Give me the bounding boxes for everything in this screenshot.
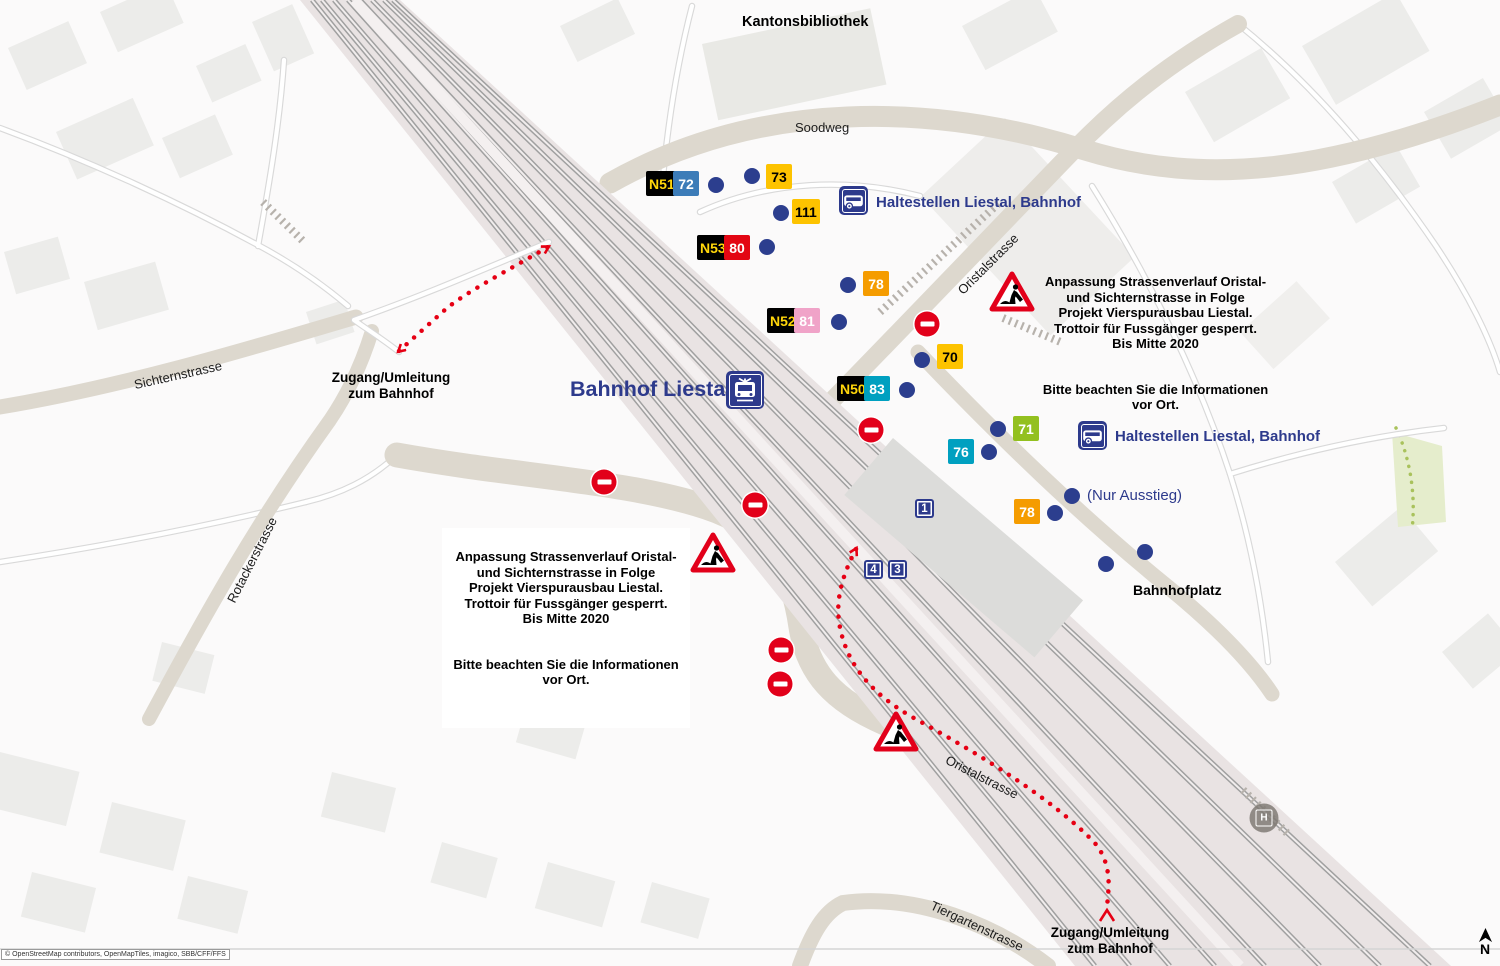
- haltestellen-label-north: Haltestellen Liestal, Bahnhof: [876, 194, 1081, 211]
- map-attribution: © OpenStreetMap contributors, OpenMapTil…: [1, 949, 230, 960]
- detour-label-north: Zugang/Umleitung zum Bahnhof: [320, 370, 462, 401]
- north-letter: N: [1480, 943, 1490, 956]
- map-canvas: Kantonsbibliothek Soodweg Sichternstrass…: [0, 0, 1500, 966]
- label-soodweg: Soodweg: [795, 120, 849, 135]
- north-arrow: N: [1476, 928, 1494, 956]
- exit-only-label: (Nur Ausstieg): [1087, 487, 1182, 504]
- road-sichternstrasse: [0, 317, 356, 407]
- detour-label-south: Zugang/Umleitung zum Bahnhof: [1035, 925, 1185, 956]
- construction-notice-west: Anpassung Strassenverlauf Oristal- und S…: [442, 528, 690, 728]
- notice-body: Anpassung Strassenverlauf Oristal- und S…: [1028, 274, 1283, 351]
- station-name-label: Bahnhof Liestal: [570, 377, 731, 402]
- bus-stop-icon: [839, 186, 868, 215]
- train-icon: [726, 371, 764, 409]
- notice-footer: Bitte beachten Sie die Informationen vor…: [442, 657, 690, 688]
- construction-notice-east: Anpassung Strassenverlauf Oristal- und S…: [1028, 259, 1283, 443]
- h-stop-letter: H: [1256, 810, 1273, 827]
- green-area: [1392, 428, 1446, 530]
- label-kantonsbibliothek: Kantonsbibliothek: [742, 14, 868, 30]
- label-bahnhofplatz: Bahnhofplatz: [1133, 582, 1222, 598]
- train-station-icon: [726, 371, 764, 409]
- h-stop-icon: H: [1250, 804, 1279, 833]
- bus-icon: [839, 186, 868, 215]
- notice-body: Anpassung Strassenverlauf Oristal- und S…: [442, 549, 690, 626]
- notice-footer: Bitte beachten Sie die Informationen vor…: [1028, 382, 1283, 413]
